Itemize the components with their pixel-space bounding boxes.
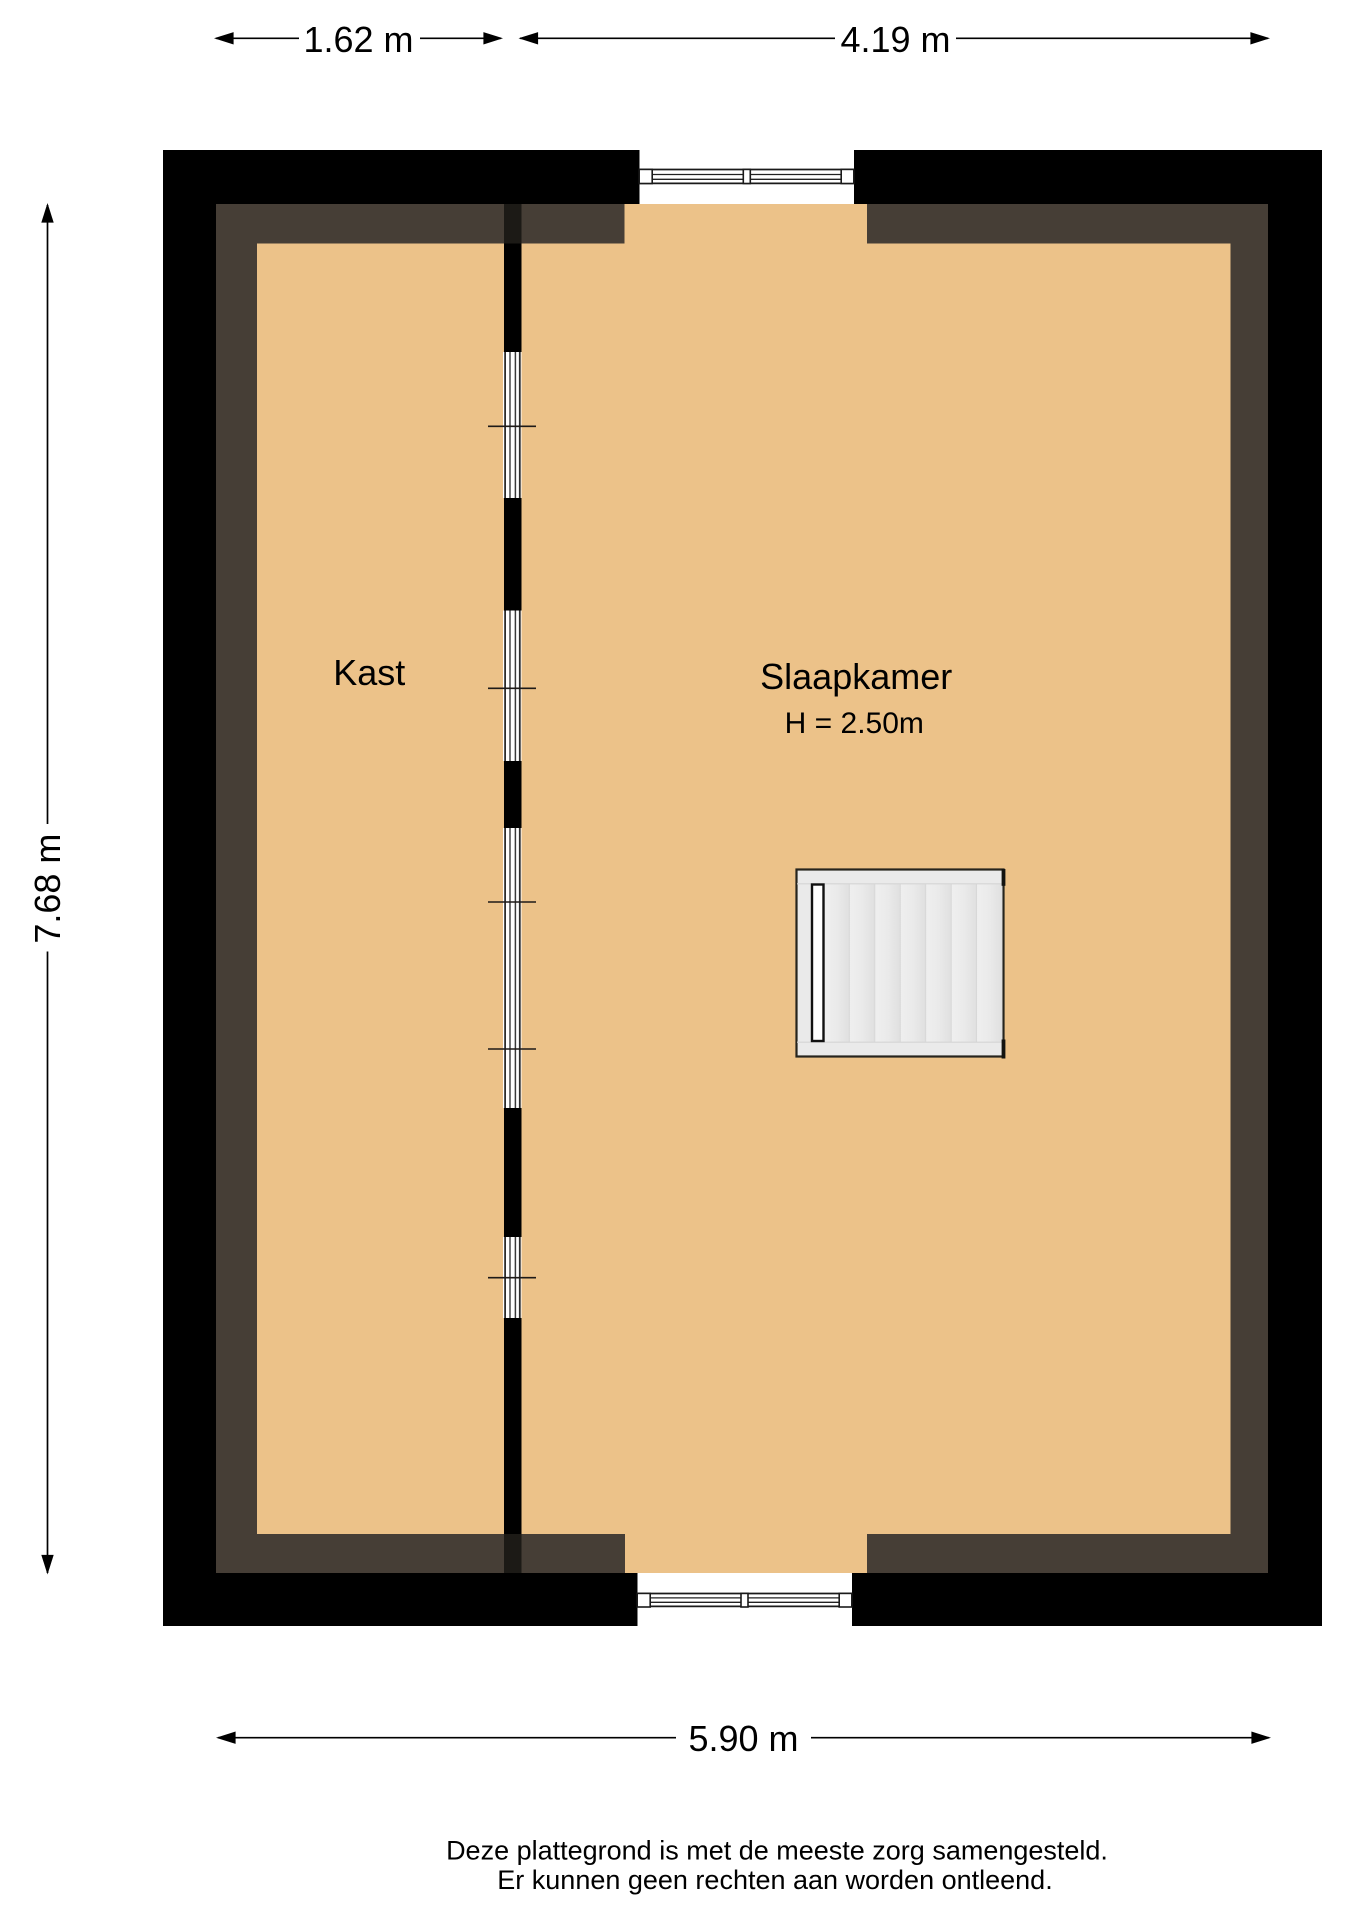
svg-text:1.62 m: 1.62 m [303,19,413,60]
svg-text:Deze plattegrond is met de mee: Deze plattegrond is met de meeste zorg s… [446,1836,1108,1866]
svg-text:Slaapkamer: Slaapkamer [760,656,952,697]
svg-text:H = 2.50m: H = 2.50m [785,707,924,740]
svg-text:7.68 m: 7.68 m [27,834,68,944]
svg-text:Kast: Kast [333,652,405,693]
svg-text:4.19 m: 4.19 m [840,19,950,60]
svg-text:5.90 m: 5.90 m [688,1718,798,1759]
svg-text:Er kunnen geen rechten aan wor: Er kunnen geen rechten aan worden ontlee… [497,1865,1052,1895]
